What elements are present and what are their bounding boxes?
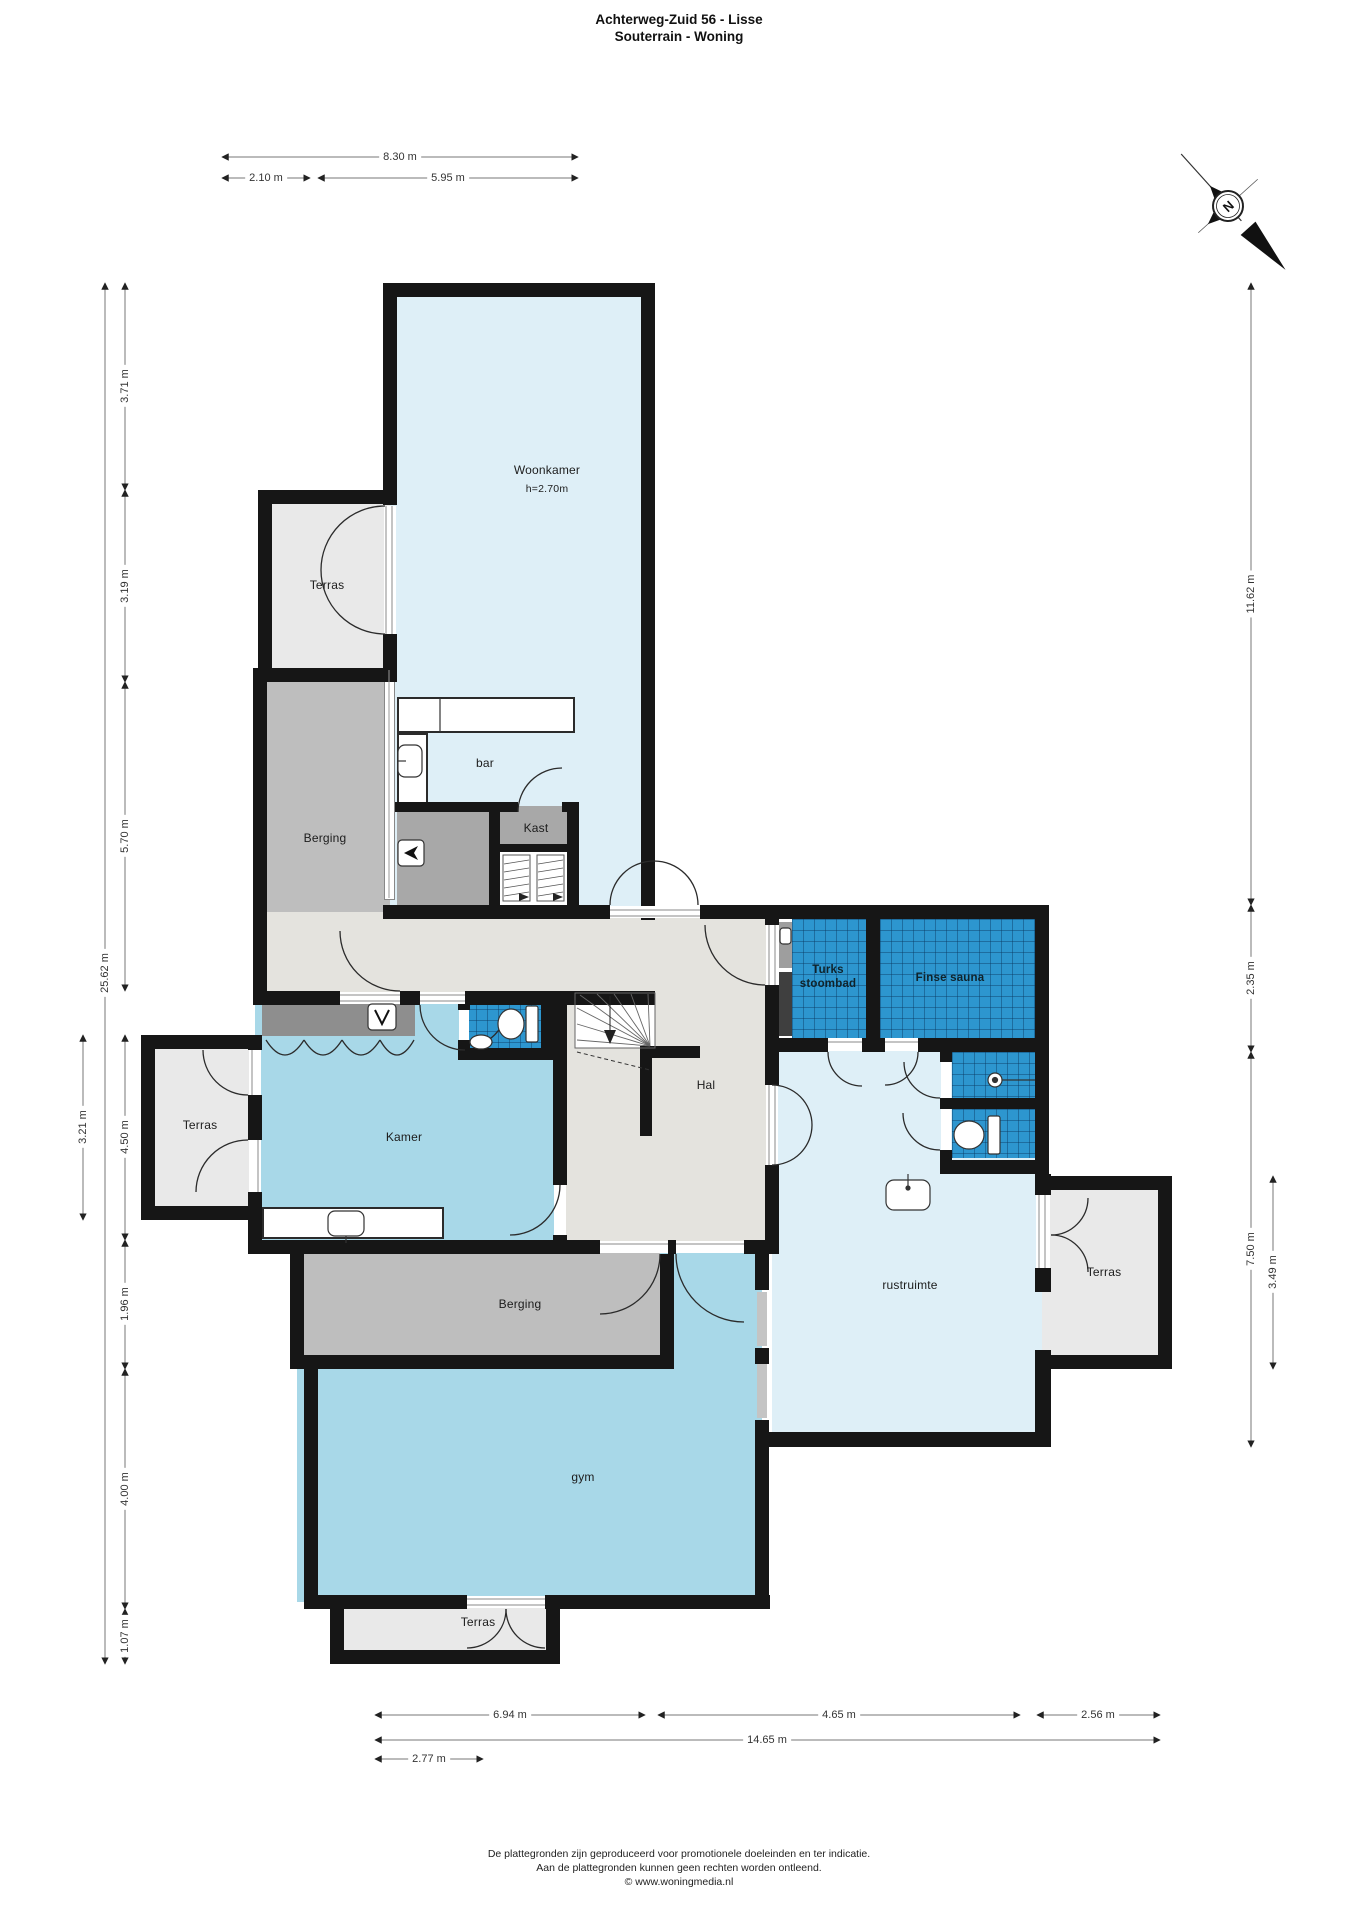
room-label-terras-left: Terras bbox=[183, 1118, 218, 1132]
wall bbox=[253, 668, 267, 1005]
room-label-terras-bottom: Terras bbox=[461, 1615, 496, 1629]
room-label-finse-sauna: Finse sauna bbox=[916, 972, 985, 984]
dim-14-65: 14.65 m bbox=[743, 1734, 791, 1746]
kamer-counter bbox=[262, 1207, 444, 1239]
floor-plan: Achterweg-Zuid 56 - Lisse Souterrain - W… bbox=[0, 0, 1358, 1920]
hal-corridor bbox=[260, 912, 772, 998]
room-terras-bottom bbox=[337, 1602, 553, 1657]
dim-3-49: 3.49 m bbox=[1267, 1251, 1279, 1293]
dim-4-65: 4.65 m bbox=[818, 1709, 860, 1721]
bar-counter-h bbox=[397, 697, 575, 733]
wall bbox=[641, 283, 655, 920]
wall bbox=[258, 490, 272, 682]
room-label-gym: gym bbox=[571, 1470, 594, 1484]
dim-8-30: 8.30 m bbox=[379, 151, 421, 163]
wall bbox=[567, 802, 579, 906]
wall bbox=[258, 668, 397, 682]
wall bbox=[304, 1595, 467, 1609]
wall bbox=[940, 1098, 1035, 1109]
wall bbox=[1035, 1355, 1172, 1369]
wall bbox=[489, 806, 500, 906]
wall bbox=[383, 634, 397, 668]
wall bbox=[940, 1052, 952, 1062]
page-subtitle: Souterrain - Woning bbox=[0, 29, 1358, 44]
wall bbox=[141, 1035, 262, 1049]
wall bbox=[1035, 1268, 1051, 1292]
wall bbox=[755, 1420, 769, 1609]
room-label-berging-top: Berging bbox=[304, 831, 347, 845]
dark-cell bbox=[779, 972, 792, 1036]
wall bbox=[248, 1035, 262, 1050]
wall bbox=[765, 1165, 779, 1247]
dim-5-95: 5.95 m bbox=[427, 172, 469, 184]
footer-line-3: © www.woningmedia.nl bbox=[0, 1876, 1358, 1888]
footer-line-2: Aan de plattegronden kunnen geen rechten… bbox=[0, 1862, 1358, 1874]
wall bbox=[660, 1254, 674, 1355]
dim-2-56: 2.56 m bbox=[1077, 1709, 1119, 1721]
room-label-hal: Hal bbox=[697, 1078, 716, 1092]
dim-2-77: 2.77 m bbox=[408, 1753, 450, 1765]
wall bbox=[458, 998, 470, 1010]
dim-1-07: 1.07 m bbox=[119, 1615, 131, 1657]
wall bbox=[866, 919, 880, 1038]
wall bbox=[940, 1160, 1049, 1174]
window-slot-a bbox=[757, 1292, 767, 1346]
wall bbox=[918, 1038, 1049, 1052]
wall bbox=[640, 1046, 652, 1136]
wall bbox=[567, 1240, 600, 1254]
room-label-terras-topleft: Terras bbox=[310, 578, 345, 592]
dim-25-62: 25.62 m bbox=[99, 949, 111, 997]
washbasin-cell bbox=[779, 922, 792, 968]
room-label-rustruimte: rustruimte bbox=[882, 1278, 937, 1292]
dim-2-35: 2.35 m bbox=[1245, 957, 1257, 999]
wall bbox=[290, 1240, 304, 1369]
room-tech bbox=[397, 806, 489, 906]
dim-6-94: 6.94 m bbox=[489, 1709, 531, 1721]
room-label-woonkamer: Woonkamer bbox=[514, 463, 580, 477]
room-label-turks-2: stoombad bbox=[800, 978, 857, 990]
page-title: Achterweg-Zuid 56 - Lisse bbox=[0, 12, 1358, 27]
kast-stairs-area bbox=[500, 852, 567, 906]
wall bbox=[765, 1052, 779, 1085]
wall bbox=[400, 991, 420, 1005]
room-label-berging-mid: Berging bbox=[499, 1297, 542, 1311]
dim-3-71: 3.71 m bbox=[119, 365, 131, 407]
room-label-turks-1: Turks bbox=[812, 964, 843, 976]
toilet-cell bbox=[952, 1109, 1035, 1158]
wall bbox=[141, 1206, 262, 1220]
room-gym bbox=[297, 1362, 762, 1602]
wall bbox=[500, 844, 573, 852]
kamer-closet bbox=[262, 1002, 415, 1036]
wall bbox=[553, 1000, 567, 1185]
dim-3-19: 3.19 m bbox=[119, 565, 131, 607]
room-label-terras-right: Terras bbox=[1087, 1265, 1122, 1279]
dim-5-70: 5.70 m bbox=[119, 815, 131, 857]
wall bbox=[1035, 1176, 1172, 1190]
room-label-kamer: Kamer bbox=[386, 1130, 422, 1144]
wall bbox=[755, 1432, 1051, 1447]
wall bbox=[755, 1254, 769, 1290]
wall bbox=[780, 905, 1049, 919]
compass-north-icon: N bbox=[1151, 127, 1315, 296]
dim-2-10: 2.10 m bbox=[245, 172, 287, 184]
kamer-bathroom bbox=[465, 998, 543, 1050]
bar-counter-v bbox=[397, 733, 428, 811]
wall bbox=[383, 905, 610, 919]
room-berging-mid bbox=[297, 1247, 667, 1362]
wall bbox=[383, 283, 397, 505]
room-height-woonkamer: h=2.70m bbox=[526, 483, 569, 495]
wall bbox=[141, 1035, 155, 1220]
dim-1-96: 1.96 m bbox=[119, 1283, 131, 1325]
wall bbox=[253, 991, 340, 1005]
wall bbox=[248, 1095, 262, 1140]
wall bbox=[383, 283, 655, 297]
wall bbox=[541, 998, 553, 1054]
wall bbox=[458, 1048, 553, 1060]
window-slot-b bbox=[757, 1364, 767, 1418]
footer-line-1: De plattegronden zijn geproduceerd voor … bbox=[0, 1848, 1358, 1860]
dim-4-50: 4.50 m bbox=[119, 1116, 131, 1158]
wall bbox=[546, 1609, 560, 1650]
shower-cell bbox=[952, 1052, 1035, 1098]
room-label-kast: Kast bbox=[524, 821, 549, 835]
room-label-bar: bar bbox=[476, 756, 494, 770]
wall bbox=[668, 1240, 676, 1254]
wall bbox=[765, 905, 779, 925]
wall bbox=[744, 1240, 779, 1254]
wall bbox=[1158, 1176, 1172, 1369]
wall bbox=[862, 1038, 885, 1052]
wall bbox=[304, 1369, 318, 1609]
dim-4-00: 4.00 m bbox=[119, 1468, 131, 1510]
wall bbox=[330, 1650, 560, 1664]
wall bbox=[765, 985, 779, 1052]
compass-n-label: N bbox=[1220, 198, 1237, 215]
wall bbox=[545, 1595, 770, 1609]
dim-7-50: 7.50 m bbox=[1245, 1228, 1257, 1270]
wall bbox=[290, 1355, 674, 1369]
dim-3-21: 3.21 m bbox=[77, 1106, 89, 1148]
wall bbox=[258, 490, 397, 504]
window-woonkamer-left bbox=[384, 668, 395, 900]
dim-11-62: 11.62 m bbox=[1245, 571, 1257, 618]
wall bbox=[755, 1348, 769, 1364]
